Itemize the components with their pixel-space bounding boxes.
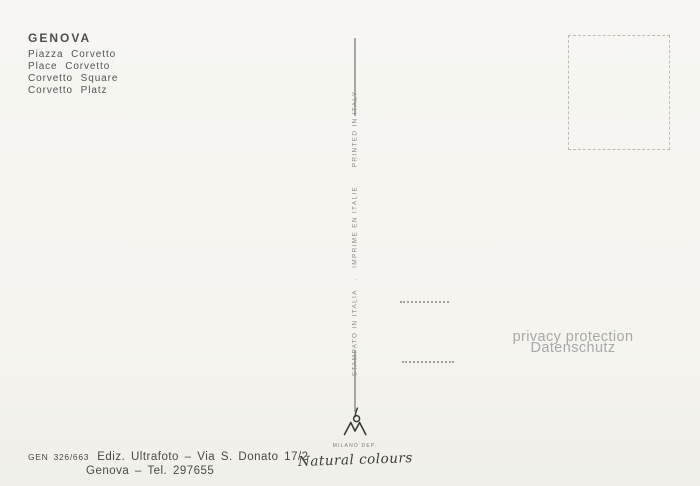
caption-line-french: Place Corvetto — [28, 61, 118, 73]
imprint-city-phone: Genova – Tel. 297655 — [86, 465, 309, 477]
publisher-caption: MILANO DEP. — [333, 443, 378, 449]
natural-colours-script: Natural colours — [297, 450, 412, 470]
printed-in-italy-vertical-text: STAMPATO IN ITALIA . IMPRIME EN ITALIE P… — [349, 116, 361, 350]
address-dashed-line-1 — [400, 301, 449, 303]
caption-line-german: Corvetto Platz — [28, 85, 118, 97]
imprint-publisher-address: Ediz. Ultrafoto – Via S. Donato 17/2 — [97, 451, 308, 463]
imprint-code: GEN 326/663 — [28, 452, 89, 462]
gm-monogram-icon — [342, 407, 368, 442]
postcard-title: GENOVA — [28, 31, 118, 45]
stamp-box — [568, 35, 670, 150]
publisher-mark: MILANO DEP. Natural colours — [309, 407, 401, 468]
caption-block: GENOVA Piazza Corvetto Place Corvetto Co… — [28, 31, 118, 97]
privacy-watermark: privacy protection Datenschutz — [492, 332, 654, 354]
postcard-back: GENOVA Piazza Corvetto Place Corvetto Co… — [0, 0, 700, 486]
address-dashed-line-2 — [402, 361, 454, 363]
publisher-imprint: GEN 326/663Ediz. Ultrafoto – Via S. Dona… — [28, 451, 309, 477]
caption-line-english: Corvetto Square — [28, 73, 118, 85]
caption-line-italian: Piazza Corvetto — [28, 49, 118, 61]
center-divider: STAMPATO IN ITALIA . IMPRIME EN ITALIE P… — [349, 38, 361, 412]
